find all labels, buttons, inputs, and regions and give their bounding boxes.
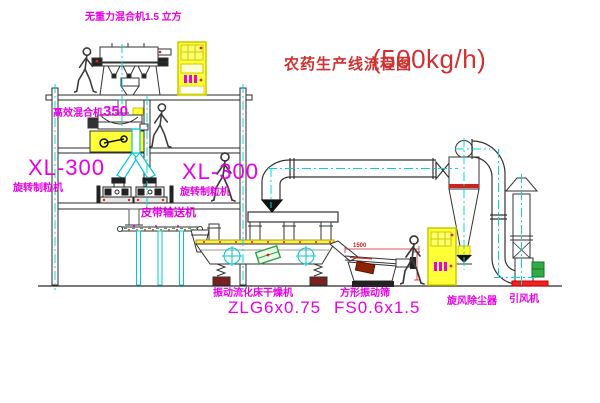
label-granulator-right-name: 旋转制粒机 — [180, 188, 230, 198]
granulator-left-machine — [97, 183, 133, 203]
label-high-efficiency-mixer-model: 350 — [103, 103, 128, 120]
label-cyclone: 旋风除尘器 — [447, 297, 497, 307]
label-high-efficiency-mixer-name: 高效混合机 — [53, 108, 103, 119]
label-granulator-left-model: XL-300 — [28, 157, 105, 179]
process-flow-diagram: 农药生产线流程图 (500kg/h) 无重力混合机1.5 立方 高效混合机350… — [0, 0, 600, 403]
worker-second-floor — [149, 104, 171, 147]
label-draft-fan: 引风机 — [509, 295, 539, 305]
granulator-right-machine — [134, 183, 173, 203]
label-sieve-model: FS0.6x1.5 — [334, 299, 421, 316]
belt-conveyor-machine — [118, 225, 203, 285]
diagram-title-capacity: (500kg/h) — [372, 44, 486, 75]
label-high-efficiency-mixer: 高效混合机350 — [53, 104, 128, 119]
exhaust-duct — [248, 158, 450, 222]
dimension-sieve-width: 1500 — [353, 243, 366, 249]
label-granulator-right-model: XL-300 — [182, 161, 259, 183]
fluid-bed-dryer-machine — [196, 222, 334, 285]
square-sieve-machine — [330, 241, 420, 287]
control-cabinet-upper — [178, 42, 206, 95]
gravity-free-mixer — [92, 43, 171, 95]
label-gravity-free-mixer: 无重力混合机1.5 立方 — [85, 13, 182, 23]
label-granulator-left-name: 旋转制粒机 — [13, 184, 63, 194]
worker-top-floor — [74, 48, 96, 92]
control-cabinet-lower — [428, 228, 456, 285]
label-dryer-model: ZLG6x0.75 — [228, 299, 321, 316]
draft-fan-machine — [512, 258, 548, 286]
label-belt-conveyor: 皮带输送机 — [141, 208, 196, 219]
